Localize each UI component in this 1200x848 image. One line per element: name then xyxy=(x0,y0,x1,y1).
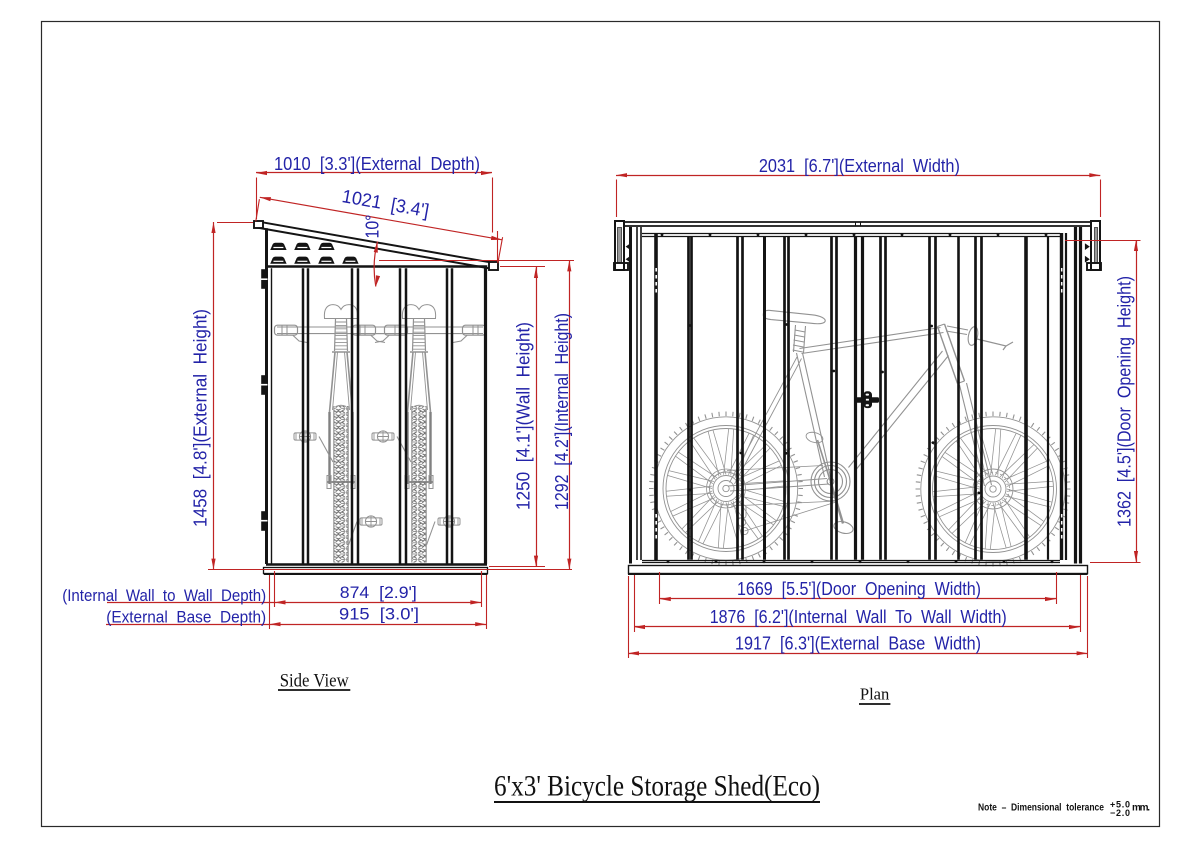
svg-text:1669 [5.5'](Door Opening Wi: 1669 [5.5'](Door Opening Width) xyxy=(737,579,981,599)
svg-text:(Internal Wall to Wall Dep: (Internal Wall to Wall Depth) xyxy=(62,586,266,605)
svg-text:1010 [3.3'](External Depth): 1010 [3.3'](External Depth) xyxy=(274,153,480,174)
svg-text:1292 [4.2'](Internal Height): 1292 [4.2'](Internal Height) xyxy=(551,313,572,510)
svg-text:10°: 10° xyxy=(362,215,383,239)
svg-text:Plan: Plan xyxy=(860,685,890,704)
svg-text:mm.: mm. xyxy=(1132,803,1150,814)
svg-text:(External Base Depth): (External Base Depth) xyxy=(106,608,266,627)
svg-text:1876 [6.2'](Internal Wall T: 1876 [6.2'](Internal Wall To Wall Width) xyxy=(710,607,1007,627)
svg-text:1458 [4.8'](External Height): 1458 [4.8'](External Height) xyxy=(190,309,211,527)
svg-text:Side View: Side View xyxy=(280,670,349,691)
svg-text:915 [3.0']: 915 [3.0'] xyxy=(339,605,419,624)
svg-text:6'x3' Bicycle Storage Shed(Eco: 6'x3' Bicycle Storage Shed(Eco) xyxy=(494,770,820,803)
svg-text:1917 [6.3'](External Base W: 1917 [6.3'](External Base Width) xyxy=(735,634,981,654)
svg-text:Note – Dimensional toleranc: Note – Dimensional tolerance xyxy=(978,803,1104,814)
svg-text:1362 [4.5'](Door Opening He: 1362 [4.5'](Door Opening Height) xyxy=(1114,276,1135,527)
svg-text:2031 [6.7'](External Width): 2031 [6.7'](External Width) xyxy=(759,155,960,176)
svg-text:−2.0: −2.0 xyxy=(1110,808,1130,818)
svg-text:1250 [4.1'](Wall Height): 1250 [4.1'](Wall Height) xyxy=(513,322,534,510)
svg-text:874 [2.9']: 874 [2.9'] xyxy=(340,583,417,602)
